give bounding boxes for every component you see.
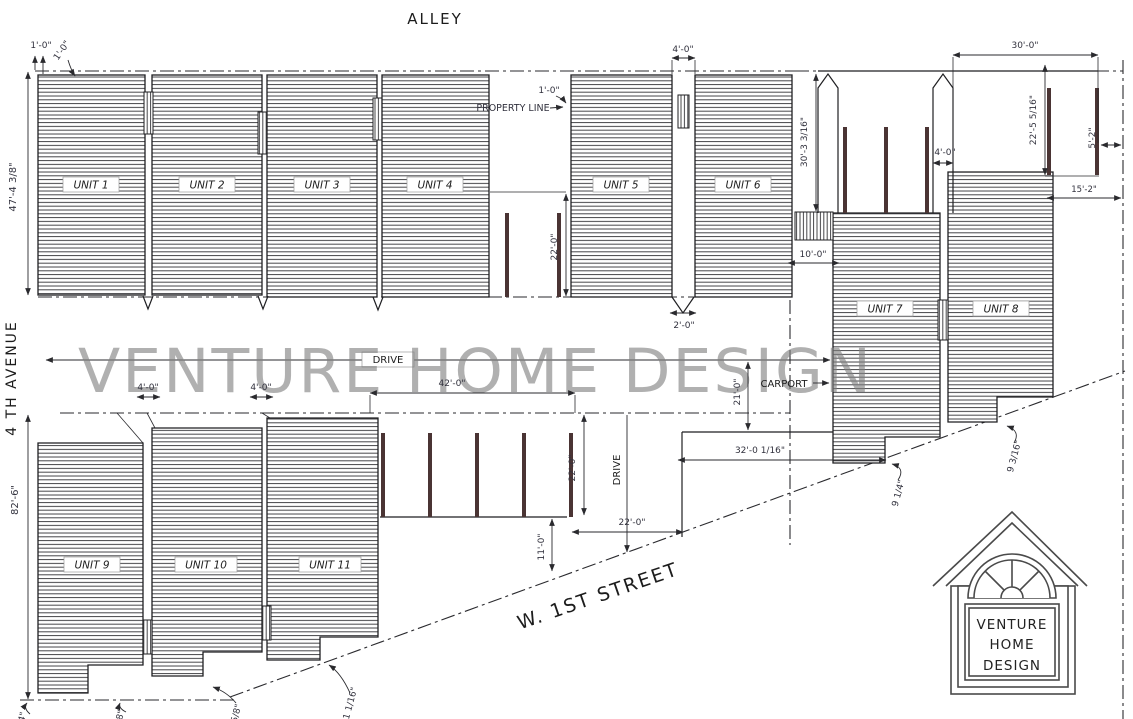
dim-edge-b: 5/8" — [113, 709, 127, 719]
drive-south-label: DRIVE — [612, 455, 623, 486]
dim-stair-width: 10'-0" — [799, 250, 826, 260]
dim-apron: 22'-0" — [618, 518, 645, 528]
company-logo: VENTURE HOME DESIGN — [933, 512, 1087, 694]
unit-2-label: UNIT 2 — [189, 180, 224, 192]
stall-divider — [522, 433, 526, 517]
dim-edge-a: 1/4" — [15, 711, 29, 719]
stall-divider — [475, 433, 479, 517]
watermark-text: VENTURE HOME DESIGN — [78, 336, 873, 407]
parking-stalls — [380, 433, 573, 517]
stall-divider — [381, 433, 385, 517]
property-line-callout: PROPERTY LINE 1'-0" — [476, 86, 566, 114]
funnel-unit-10 — [147, 413, 155, 428]
connector-9-10 — [143, 620, 152, 654]
unit-7-label: UNIT 7 — [867, 304, 902, 316]
unit-10-label: UNIT 10 — [185, 560, 227, 572]
carport-post — [925, 127, 929, 213]
dim-east-depth-a: 30'-3 3/16" — [800, 117, 810, 167]
dim-alley-offset-b: 1'-0" — [52, 39, 72, 62]
unit-11-building — [267, 418, 378, 660]
property-line-leader — [550, 107, 563, 108]
first-street-label: W. 1ST STREET — [515, 558, 682, 634]
property-line-label: PROPERTY LINE — [476, 103, 549, 114]
dim-breezeway: 4'-0" — [672, 45, 693, 55]
avenue-label: 4 TH AVENUE — [4, 320, 20, 436]
dim-edge-d: 1 1/16" — [342, 686, 360, 719]
site-plan-sheet: DRIVE DRIVE VENTURE HOME DESIGN ALLEY 4 … — [0, 0, 1133, 719]
connector-2-3 — [258, 112, 267, 154]
stair-block — [795, 212, 833, 240]
dim-street-setback: 11'-0" — [537, 533, 547, 560]
property-offset-leader — [556, 96, 566, 103]
dim-east-gap: 5'-2" — [1088, 127, 1098, 148]
dim-post-bay: 4'-0" — [934, 148, 955, 158]
carport-label: CARPORT — [760, 379, 808, 390]
dim-east-setback: 15'-2" — [1071, 185, 1097, 195]
carport-post — [1047, 88, 1051, 175]
unit-3-label: UNIT 3 — [304, 180, 339, 192]
unit-5-label: UNIT 5 — [603, 180, 638, 192]
notch-2-3 — [258, 296, 268, 309]
dim-seam-b: 9 3/16" — [1006, 439, 1024, 473]
unit-6-label: UNIT 6 — [725, 180, 760, 192]
dim-property-offset: 1'-0" — [538, 86, 559, 96]
carport-post — [884, 127, 888, 213]
site-plan-drawing: DRIVE DRIVE VENTURE HOME DESIGN ALLEY 4 … — [0, 0, 1133, 719]
logo-text-line2: HOME — [990, 637, 1035, 653]
carport-post — [843, 127, 847, 213]
logo-text-line1: VENTURE — [977, 617, 1048, 633]
dim-alley-offset-a: 1'-0" — [30, 41, 51, 51]
dim-parking-width: 42'-0" — [438, 379, 465, 389]
unit-11-label: UNIT 11 — [309, 560, 351, 572]
connector-10-11 — [262, 606, 271, 640]
notch-1-2 — [143, 296, 153, 309]
funnel-unit-9 — [117, 413, 143, 443]
unit-4-label: UNIT 4 — [417, 180, 452, 192]
dim-edge-c: 5/8" — [230, 703, 244, 719]
dim-parking-depth: 22'-0" — [568, 454, 578, 481]
court-stall-post — [505, 213, 509, 297]
notch-3-4 — [373, 297, 383, 310]
notch-5-6 — [672, 297, 694, 313]
funnel-unit-11 — [262, 413, 270, 418]
dim-seam-a: 9 1/4" — [891, 479, 908, 508]
alley-label: ALLEY — [407, 10, 463, 28]
dim-row-depth: 47'-4 3/8" — [8, 162, 19, 211]
dim-west-depth: 82'-6" — [10, 485, 21, 515]
carport-gable-west — [818, 74, 838, 213]
unit-9-label: UNIT 9 — [74, 560, 109, 572]
stall-divider — [428, 433, 432, 517]
unit-1-label: UNIT 1 — [73, 180, 108, 192]
unit-8-building — [948, 172, 1053, 422]
dim-court-depth: 22'-0" — [550, 233, 560, 260]
unit-8-label: UNIT 8 — [983, 304, 1018, 316]
connector-5-6 — [678, 95, 689, 128]
dim-carport-depth: 21'-0" — [733, 378, 743, 405]
dim-east-depth-b: 22'-5 5/16" — [1029, 95, 1039, 145]
dim-carport-span: 30'-0" — [1011, 41, 1038, 51]
dim-entry-10: 4'-0" — [137, 383, 158, 393]
connector-7-8 — [938, 300, 948, 340]
dim-entry-11: 4'-0" — [250, 383, 271, 393]
connector-3-4 — [373, 98, 382, 140]
connector-1-2 — [144, 92, 153, 134]
unit-10-building — [152, 428, 262, 676]
dim-notch: 2'-0" — [673, 321, 694, 331]
logo-text-line3: DESIGN — [983, 658, 1041, 674]
dim-slab-width: 32'-0 1/16" — [735, 446, 785, 456]
